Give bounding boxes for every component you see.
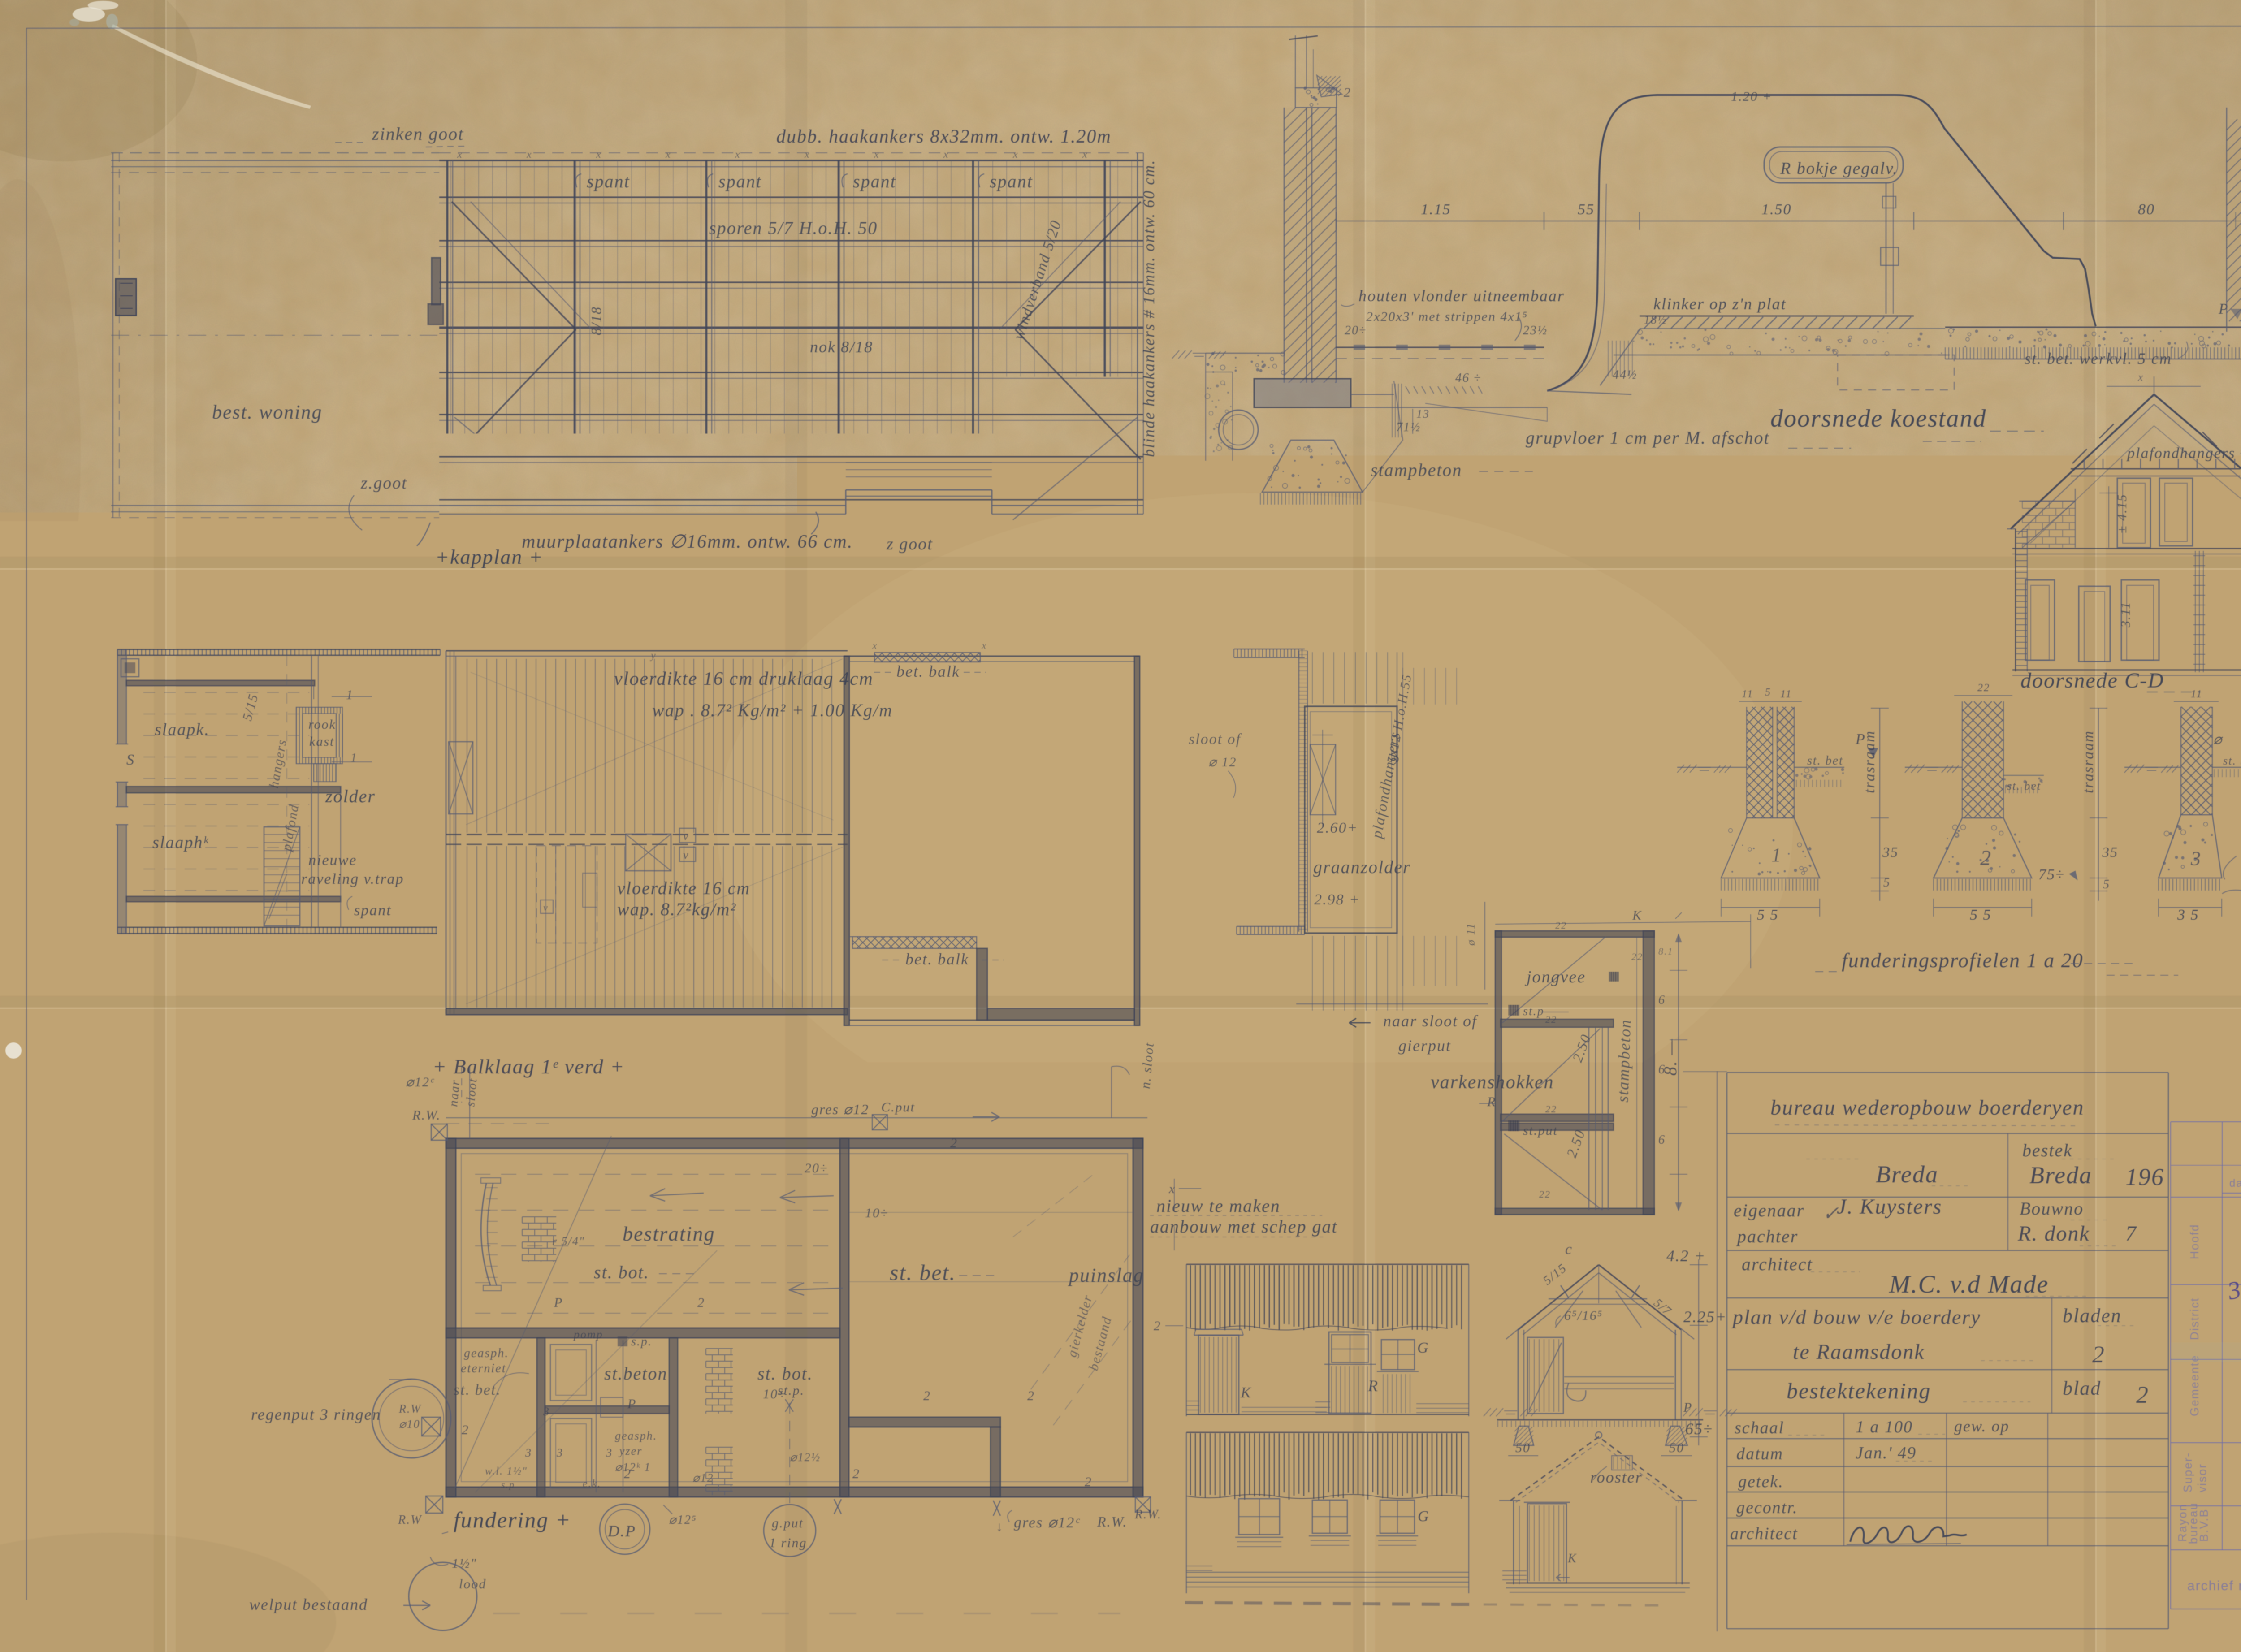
svg-text:gres ⌀12: gres ⌀12: [811, 1101, 869, 1117]
svg-text:2.98 +: 2.98 +: [1314, 891, 1360, 908]
svg-text:R: R: [1487, 1094, 1496, 1109]
svg-text:wap . 8.7² Kg/m² + 1.00 Kg/m: wap . 8.7² Kg/m² + 1.00 Kg/m: [652, 700, 893, 720]
svg-text:2: 2: [1344, 85, 1351, 100]
svg-text:rook: rook: [308, 717, 336, 732]
svg-text:blad: blad: [2063, 1377, 2101, 1399]
svg-text:archief no:: archief no:: [2187, 1578, 2241, 1593]
svg-text:P: P: [1683, 1400, 1692, 1415]
svg-text:x: x: [665, 149, 671, 160]
svg-text:x: x: [1082, 149, 1088, 160]
svg-text:22: 22: [1545, 1103, 1557, 1115]
svg-text:x: x: [874, 149, 880, 160]
svg-text:stampbeton: stampbeton: [1614, 1019, 1634, 1103]
svg-text:196: 196: [2125, 1163, 2164, 1190]
svg-text:71½: 71½: [1396, 420, 1421, 434]
svg-text:50: 50: [1515, 1440, 1531, 1455]
svg-text:regenput 3 ringen: regenput 3 ringen: [251, 1405, 381, 1423]
svg-text:18½: 18½: [1644, 313, 1667, 326]
svg-text:+kapplan +: +kapplan +: [435, 545, 544, 568]
svg-text:stampbeton: stampbeton: [1371, 460, 1462, 480]
svg-text:wap. 8.7²kg/m²: wap. 8.7²kg/m²: [617, 899, 736, 919]
svg-text:± 4.15: ± 4.15: [2115, 494, 2129, 533]
svg-text:slaapk.: slaapk.: [155, 720, 210, 739]
svg-text:datum: datum: [2229, 1177, 2241, 1189]
svg-text:v: v: [683, 830, 689, 843]
svg-text:nieuwe: nieuwe: [308, 852, 357, 869]
svg-text:Bouwno: Bouwno: [2020, 1198, 2084, 1219]
svg-text:S: S: [126, 752, 135, 768]
svg-text:2: 2: [1027, 1388, 1035, 1403]
svg-text:s.p: s.p: [501, 1479, 515, 1490]
svg-text:vloerdikte 16 cm: vloerdikte 16 cm: [617, 878, 750, 898]
svg-text:sloot: sloot: [463, 1077, 480, 1107]
svg-text:6: 6: [1658, 1133, 1666, 1147]
svg-text:R.W: R.W: [398, 1402, 421, 1415]
svg-text:6: 6: [1658, 1063, 1666, 1077]
svg-text:muurplaatankers ∅16mm. ontw.: muurplaatankers ∅16mm. ontw. 66 cm.: [522, 532, 853, 552]
svg-text:⌀12½: ⌀12½: [790, 1451, 821, 1464]
svg-text:2: 2: [2092, 1341, 2105, 1368]
svg-text:10÷: 10÷: [865, 1206, 888, 1220]
svg-text:fundering +: fundering +: [454, 1507, 571, 1532]
svg-text:5: 5: [1883, 876, 1891, 890]
svg-text:⌀12: ⌀12: [692, 1471, 714, 1484]
svg-text:funderingsprofielen 1 a 20: funderingsprofielen 1 a 20: [1842, 949, 2084, 972]
svg-text:zolder: zolder: [325, 786, 376, 806]
svg-text:22: 22: [1545, 1014, 1557, 1025]
svg-text:23½: 23½: [1523, 324, 1548, 337]
svg-text:sporen 5/7 H.o.H. 50: sporen 5/7 H.o.H. 50: [709, 218, 878, 238]
svg-text:P: P: [554, 1295, 563, 1310]
svg-text:R bokje gegalv.: R bokje gegalv.: [1780, 159, 1898, 178]
svg-text:↓: ↓: [996, 1519, 1004, 1534]
svg-text:bet. balk: bet. balk: [905, 950, 969, 968]
svg-text:g.put: g.put: [772, 1516, 804, 1531]
svg-text:visor: visor: [2195, 1463, 2209, 1492]
svg-text:2: 2: [1085, 1475, 1092, 1489]
svg-text:pachter: pachter: [1736, 1226, 1798, 1246]
svg-text:nieuw te maken: nieuw te maken: [1156, 1196, 1281, 1216]
svg-text:⌀: ⌀: [2213, 731, 2223, 747]
svg-text:x: x: [735, 149, 741, 160]
svg-text:ø 11: ø 11: [1464, 922, 1477, 946]
svg-text:2.60+: 2.60+: [1317, 820, 1358, 836]
svg-text:1: 1: [346, 688, 354, 702]
svg-text:⌀12ᵏ 1: ⌀12ᵏ 1: [615, 1461, 651, 1474]
svg-text:pomp: pomp: [573, 1328, 603, 1341]
svg-text:naar sloot of: naar sloot of: [1383, 1012, 1479, 1030]
svg-text:1: 1: [1771, 844, 1782, 866]
svg-text:best. woning: best. woning: [212, 401, 322, 423]
svg-text:50: 50: [1669, 1440, 1684, 1455]
svg-text:bet. balk: bet. balk: [896, 662, 960, 680]
svg-text:spant: spant: [990, 171, 1033, 191]
svg-text:blinde haakankers # 16mm. ontw: blinde haakankers # 16mm. ontw. 60 cm.: [1140, 160, 1158, 457]
svg-text:v: v: [543, 902, 549, 913]
svg-text:te Raamsdonk: te Raamsdonk: [1793, 1340, 1925, 1364]
svg-text:rooster: rooster: [1590, 1468, 1643, 1486]
svg-text:⌀12⁵: ⌀12⁵: [669, 1513, 697, 1527]
svg-text:bladen: bladen: [2063, 1305, 2122, 1327]
svg-text:gew. op: gew. op: [1954, 1417, 2009, 1435]
svg-text:st. bet.: st. bet.: [890, 1260, 956, 1285]
svg-text:22: 22: [1539, 1189, 1551, 1200]
svg-text:35: 35: [2102, 844, 2118, 860]
svg-text:x: x: [640, 495, 646, 506]
svg-text:x: x: [806, 495, 812, 506]
svg-text:district: district: [1743, 1141, 1801, 1161]
svg-text:K: K: [1632, 908, 1642, 923]
svg-text:datum: datum: [1736, 1444, 1783, 1463]
svg-text:3.11: 3.11: [2118, 601, 2133, 628]
svg-text:bestektekening: bestektekening: [1787, 1378, 1931, 1403]
svg-text:District: District: [2188, 1297, 2201, 1340]
svg-text:R.W: R.W: [398, 1513, 422, 1527]
svg-text:spant: spant: [853, 171, 896, 191]
svg-text:55: 55: [1578, 201, 1595, 218]
svg-text:aanbouw met schep gat: aanbouw met schep gat: [1150, 1216, 1338, 1237]
svg-text:46 ÷: 46 ÷: [1455, 371, 1481, 385]
svg-text:x: x: [981, 640, 987, 652]
svg-text:⌀12ᶜ: ⌀12ᶜ: [406, 1075, 434, 1090]
svg-text:8.1: 8.1: [1658, 946, 1674, 957]
svg-text:r 5/4": r 5/4": [552, 1235, 585, 1248]
svg-text:R.W.: R.W.: [1097, 1514, 1127, 1530]
svg-text:v: v: [683, 848, 689, 861]
svg-text:4.2 +: 4.2 +: [1666, 1247, 1706, 1265]
svg-text:D.P: D.P: [607, 1522, 636, 1540]
svg-text:B.V.B: B.V.B: [2197, 1509, 2211, 1542]
svg-text:architect: architect: [1730, 1524, 1798, 1543]
svg-text:2: 2: [624, 1466, 632, 1481]
svg-text:Jan.' 49: Jan.' 49: [1856, 1444, 1917, 1462]
svg-text:2: 2: [852, 1466, 860, 1481]
svg-text:spant: spant: [587, 171, 630, 191]
svg-text:trasraam: trasraam: [1861, 730, 1878, 793]
svg-text:e.k.: e.k.: [583, 1478, 601, 1490]
svg-text:c: c: [1565, 1241, 1573, 1258]
svg-text:gecontr.: gecontr.: [1736, 1498, 1798, 1517]
svg-text:20÷: 20÷: [1345, 324, 1367, 337]
svg-text:K: K: [1240, 1384, 1252, 1401]
svg-text:Hoofd: Hoofd: [2188, 1224, 2201, 1259]
svg-text:bureau wederopbouw boerderye: bureau wederopbouw boerderyen: [1770, 1096, 2085, 1120]
svg-text:varkenshokken: varkenshokken: [1431, 1072, 1554, 1093]
svg-text:M.C. v.d Made: M.C. v.d Made: [1889, 1271, 2049, 1298]
svg-text:x: x: [872, 640, 878, 652]
svg-text:st. bet.: st. bet.: [454, 1382, 501, 1398]
svg-text:3: 3: [543, 1405, 550, 1418]
svg-text:dubb. haakankers 8x32mm. ontw: dubb. haakankers 8x32mm. ontw. 1.20m: [776, 126, 1112, 147]
svg-text:2.25+: 2.25+: [1683, 1308, 1727, 1326]
svg-text:bestrating: bestrating: [623, 1222, 715, 1245]
svg-text:kast: kast: [309, 734, 334, 749]
svg-text:w.l. 1½": w.l. 1½": [485, 1466, 528, 1477]
svg-text:st. bet: st. bet: [2007, 779, 2041, 792]
svg-text:y: y: [650, 650, 657, 662]
svg-text:Breda: Breda: [2029, 1162, 2092, 1189]
svg-text:naar: naar: [446, 1079, 463, 1107]
svg-text:6: 6: [1658, 993, 1666, 1007]
svg-text:x: x: [804, 149, 810, 160]
svg-text:x: x: [2137, 371, 2144, 384]
svg-text:doorsnede koestand: doorsnede koestand: [1770, 405, 1986, 432]
svg-text:65÷: 65÷: [1685, 1420, 1713, 1438]
svg-text:J. Kuysters: J. Kuysters: [1837, 1195, 1942, 1219]
svg-text:R. donk: R. donk: [2017, 1222, 2090, 1245]
svg-text:80: 80: [2138, 201, 2155, 218]
svg-text:st.beton: st.beton: [604, 1363, 668, 1384]
svg-text:geasph.: geasph.: [615, 1429, 657, 1442]
svg-text:2: 2: [697, 1295, 705, 1310]
svg-text:2x20x3' met strippen 4x1⁵: 2x20x3' met strippen 4x1⁵: [1366, 309, 1528, 324]
svg-text:grupvloer 1 cm per M. afschot: grupvloer 1 cm per M. afschot: [1526, 428, 1770, 448]
svg-text:gres ⌀12ᶜ: gres ⌀12ᶜ: [1014, 1514, 1080, 1531]
svg-text:2: 2: [1154, 1319, 1161, 1333]
svg-text:x: x: [526, 149, 532, 160]
svg-text:x: x: [723, 495, 729, 506]
svg-text:Super-: Super-: [2181, 1452, 2194, 1492]
svg-text:getek.: getek.: [1738, 1472, 1784, 1491]
svg-text:welput bestaand: welput bestaand: [249, 1596, 368, 1613]
svg-text:2: 2: [950, 1136, 958, 1150]
svg-text:G: G: [1417, 1340, 1429, 1356]
svg-text:3: 3: [2190, 848, 2202, 869]
svg-text:spant: spant: [718, 171, 762, 191]
svg-text:x: x: [475, 495, 480, 506]
svg-text:22: 22: [1631, 951, 1643, 962]
svg-text:13: 13: [1416, 407, 1430, 420]
svg-text:st. bet: st. bet: [1807, 754, 1843, 768]
svg-text:st.p.: st.p.: [778, 1383, 805, 1398]
svg-text:z goot: z goot: [886, 535, 933, 554]
svg-text:3: 3: [606, 1446, 613, 1459]
svg-text:11: 11: [1780, 688, 1792, 700]
svg-text:geasph.: geasph.: [464, 1346, 509, 1360]
svg-text:3: 3: [525, 1446, 532, 1459]
svg-text:1 ring: 1 ring: [769, 1535, 807, 1550]
svg-text:R.W.: R.W.: [1134, 1508, 1162, 1522]
svg-text:z.goot: z.goot: [360, 474, 407, 493]
svg-text:R.W.: R.W.: [412, 1108, 441, 1123]
svg-text:z.goot: z.goot: [884, 465, 933, 485]
svg-text:⌀12: ⌀12: [1094, 1079, 1118, 1094]
svg-text:slaaphᵏ: slaaphᵏ: [152, 833, 209, 852]
svg-text:s.p.: s.p.: [631, 1335, 652, 1349]
svg-text:st. bet. werkvl. 5 cm: st. bet. werkvl. 5 cm: [2025, 350, 2172, 368]
svg-text:75÷: 75÷: [2038, 866, 2065, 883]
svg-text:44½: 44½: [1613, 368, 1637, 382]
svg-text:eterniet: eterniet: [461, 1362, 506, 1375]
svg-text:3 5: 3 5: [2177, 907, 2199, 923]
svg-text:5 5: 5 5: [1970, 907, 1992, 923]
svg-text:K: K: [1567, 1552, 1577, 1566]
svg-text:5 5: 5 5: [1757, 907, 1779, 923]
svg-text:2: 2: [1980, 846, 1992, 870]
svg-text:2: 2: [923, 1388, 931, 1403]
svg-text:schaal: schaal: [1735, 1418, 1784, 1437]
svg-text:nok 8/18: nok 8/18: [810, 338, 873, 356]
svg-text:st. bot.: st. bot.: [757, 1363, 813, 1384]
svg-text:plan v/d bouw v/e boerdery: plan v/d bouw v/e boerdery: [1731, 1306, 1981, 1328]
svg-text:22: 22: [1977, 682, 1990, 694]
svg-text:1: 1: [350, 751, 358, 765]
svg-text:eigenaar: eigenaar: [1734, 1200, 1804, 1220]
svg-text:st. bot.: st. bot.: [594, 1262, 649, 1282]
svg-text:Gemeente: Gemeente: [2188, 1355, 2201, 1416]
svg-text:x: x: [943, 149, 949, 160]
svg-text:5: 5: [2103, 878, 2110, 891]
svg-text:plafondhangers ⁵/15 -50: plafondhangers ⁵/15 -50: [2126, 445, 2241, 462]
svg-text:R: R: [1367, 1377, 1379, 1395]
svg-text:G: G: [1418, 1508, 1430, 1525]
svg-text:x: x: [558, 495, 563, 506]
svg-text:11: 11: [2191, 688, 2202, 700]
svg-text:7: 7: [2125, 1222, 2137, 1245]
svg-text:6⁵/16⁵: 6⁵/16⁵: [1564, 1308, 1603, 1323]
svg-text:22: 22: [1555, 920, 1567, 931]
svg-text:1 a 100: 1 a 100: [1856, 1418, 1913, 1436]
svg-text:klinker op z'n plat: klinker op z'n plat: [1653, 295, 1787, 313]
svg-text:P: P: [627, 1397, 636, 1411]
svg-text:x: x: [596, 149, 602, 160]
svg-text:jongvee: jongvee: [1524, 968, 1586, 986]
svg-text:11: 11: [1742, 688, 1753, 700]
svg-text:architect: architect: [1742, 1254, 1813, 1274]
svg-text:8/18: 8/18: [588, 306, 604, 335]
svg-text:st.put: st.put: [1523, 1123, 1558, 1138]
svg-text:5: 5: [1765, 687, 1771, 698]
svg-text:st. bet: st. bet: [2223, 754, 2241, 767]
svg-text:20÷: 20÷: [805, 1161, 828, 1176]
svg-text:⌀ 12: ⌀ 12: [1208, 755, 1237, 770]
svg-text:yzer: yzer: [618, 1444, 642, 1457]
svg-text:zinken goot: zinken goot: [372, 124, 464, 144]
svg-text:2: 2: [2136, 1381, 2149, 1408]
svg-text:3: 3: [556, 1446, 563, 1459]
svg-text:puinslag: puinslag: [1068, 1264, 1144, 1286]
svg-text:gierput: gierput: [1398, 1037, 1451, 1055]
svg-text:houten vlonder uitneembaar: houten vlonder uitneembaar: [1358, 287, 1565, 305]
svg-text:1½": 1½": [452, 1556, 477, 1571]
svg-text:+ Balklaag 1ᵉ verd +: + Balklaag 1ᵉ verd +: [433, 1055, 625, 1078]
svg-text:2: 2: [462, 1423, 469, 1437]
svg-text:35: 35: [1882, 844, 1899, 860]
svg-text:x: x: [457, 149, 463, 160]
svg-text:1.15: 1.15: [1421, 201, 1451, 218]
svg-text:C.put: C.put: [881, 1100, 915, 1115]
svg-text:bestek: bestek: [2022, 1140, 2072, 1160]
svg-text:raveling v.trap: raveling v.trap: [301, 871, 404, 887]
svg-text:trasraam: trasraam: [2080, 730, 2097, 793]
svg-text:Breda: Breda: [1876, 1161, 1938, 1188]
svg-text:spant: spant: [354, 902, 392, 919]
svg-text:graanzolder: graanzolder: [1313, 857, 1411, 877]
svg-text:1.20 +: 1.20 +: [1731, 89, 1772, 104]
svg-text:1.50: 1.50: [1761, 201, 1792, 218]
svg-text:st.p: st.p: [1523, 1004, 1544, 1018]
svg-text:⌀10: ⌀10: [399, 1418, 420, 1431]
svg-text:doorsnede C-D: doorsnede C-D: [2020, 669, 2164, 692]
svg-text:vloerdikte 16 cm druklaag 4c: vloerdikte 16 cm druklaag 4cm: [614, 669, 874, 689]
svg-text:sloot of: sloot of: [1189, 731, 1242, 748]
svg-text:x: x: [1012, 149, 1019, 160]
